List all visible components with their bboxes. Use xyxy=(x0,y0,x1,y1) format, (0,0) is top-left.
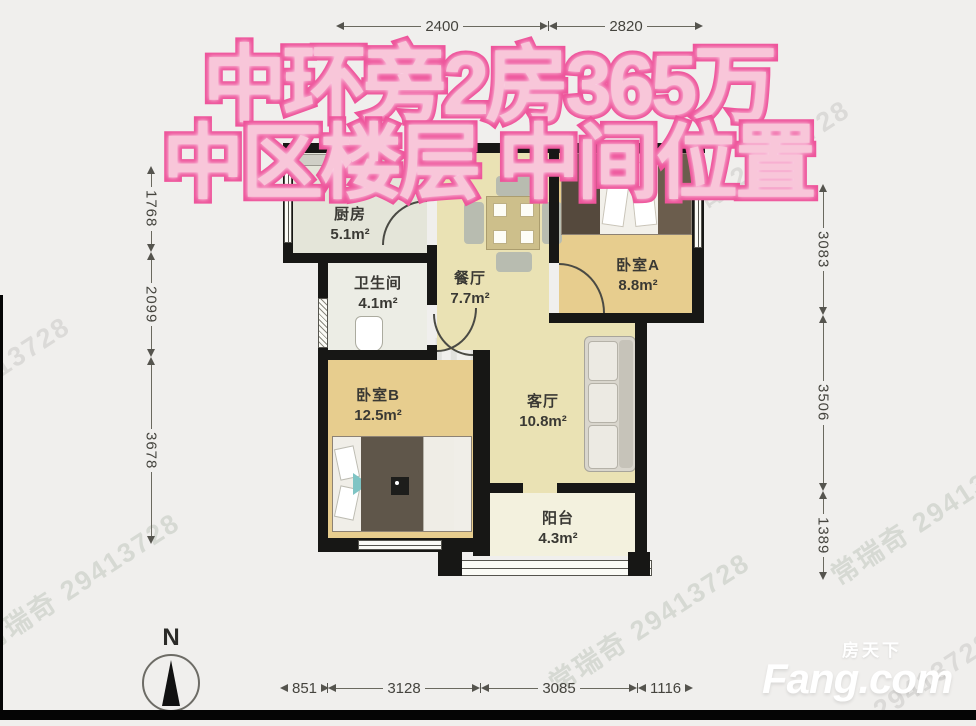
toilet xyxy=(355,316,383,352)
sofa-back xyxy=(619,340,633,468)
dimension-value: 3083 xyxy=(815,228,832,271)
dimension-left: 1768 2099 3678 xyxy=(142,166,160,544)
balcony-window xyxy=(452,560,652,576)
room-area: 5.1m² xyxy=(295,226,405,243)
dimension-value: 3085 xyxy=(538,680,579,697)
room-label-bedroom-a: 卧室A 8.8m² xyxy=(583,254,693,294)
window xyxy=(358,540,442,550)
bedroom-b-bed xyxy=(332,436,472,532)
room-area: 8.8m² xyxy=(583,277,693,294)
dimension-value: 1768 xyxy=(143,187,160,230)
placemat xyxy=(493,230,507,244)
dimension-value: 851 xyxy=(288,680,321,697)
room-area: 12.5m² xyxy=(323,407,433,424)
dimension-value: 3678 xyxy=(143,429,160,472)
room-label-living: 客厅 10.8m² xyxy=(488,390,598,430)
wall xyxy=(549,313,702,323)
room-area: 4.3m² xyxy=(503,530,613,547)
north-label: N xyxy=(141,624,201,652)
fang-logo: 房天下 Fang.com xyxy=(762,636,972,703)
compass-needle-icon xyxy=(162,660,180,706)
dimension-right: 3083 3506 1389 xyxy=(814,184,832,580)
balcony-post xyxy=(628,552,650,576)
wall xyxy=(427,345,437,360)
room-area: 7.7m² xyxy=(415,290,525,307)
wall xyxy=(557,483,645,493)
wall xyxy=(635,323,647,556)
room-label-dining: 餐厅 7.7m² xyxy=(415,267,525,307)
sofa-cushion xyxy=(588,341,618,381)
room-label-balcony: 阳台 4.3m² xyxy=(503,507,613,547)
dimension-value: 1389 xyxy=(815,514,832,557)
room-name: 客厅 xyxy=(488,390,598,411)
dimension-bottom: 851 3128 3085 1116 xyxy=(280,679,694,697)
sofa-cushion xyxy=(588,425,618,469)
fang-logo-en: Fang.com xyxy=(762,655,972,703)
wall xyxy=(473,350,490,556)
dimension-value: 2099 xyxy=(143,283,160,326)
room-name: 阳台 xyxy=(503,507,613,528)
room-name: 卧室B xyxy=(323,384,433,405)
room-name: 卧室A xyxy=(583,254,693,275)
dimension-value: 3128 xyxy=(383,680,424,697)
wall xyxy=(283,253,437,263)
room-area: 10.8m² xyxy=(488,413,598,430)
headline-line2: 中区楼层 中间位置 xyxy=(162,96,814,215)
dimension-value: 1116 xyxy=(646,680,685,697)
dimension-value: 3506 xyxy=(815,381,832,424)
left-edge-bar xyxy=(0,295,3,720)
north-arrow: N xyxy=(141,624,201,712)
balcony-post xyxy=(438,552,462,576)
bottom-edge-bar xyxy=(0,710,976,720)
placemat xyxy=(520,230,534,244)
wall xyxy=(318,350,432,360)
bed-panel xyxy=(423,437,454,531)
room-name: 餐厅 xyxy=(415,267,525,288)
room-label-bedroom-b: 卧室B 12.5m² xyxy=(323,384,433,424)
compass-circle-icon xyxy=(142,654,200,712)
bed-tv xyxy=(391,477,409,495)
